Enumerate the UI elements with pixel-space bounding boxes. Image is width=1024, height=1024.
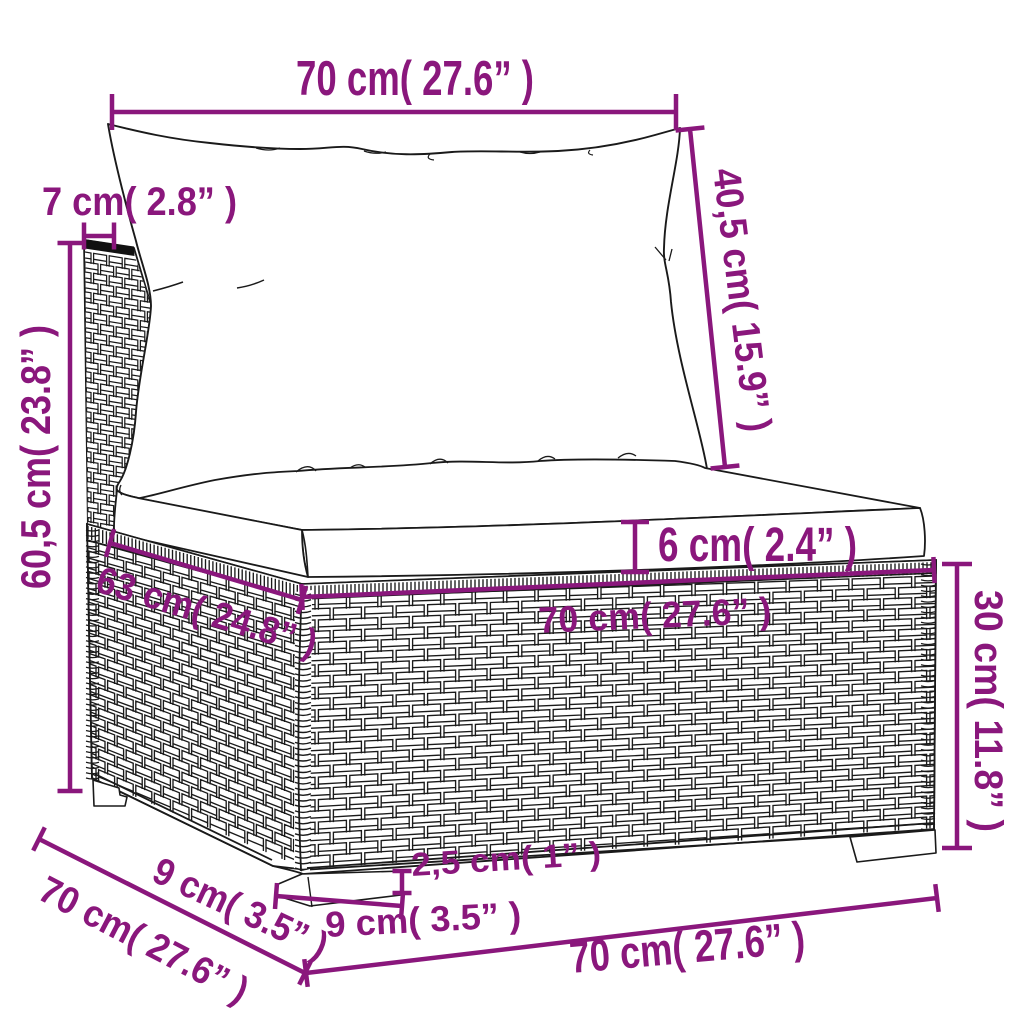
svg-text:6 cm( 2.4” ): 6 cm( 2.4” ) (658, 519, 857, 572)
svg-text:70 cm( 27.6” ): 70 cm( 27.6” ) (296, 52, 534, 106)
svg-text:30 cm( 11.8” ): 30 cm( 11.8” ) (966, 590, 1010, 832)
svg-text:60,5 cm( 23.8” ): 60,5 cm( 23.8” ) (12, 325, 59, 589)
svg-text:7 cm( 2.8” ): 7 cm( 2.8” ) (42, 180, 237, 224)
